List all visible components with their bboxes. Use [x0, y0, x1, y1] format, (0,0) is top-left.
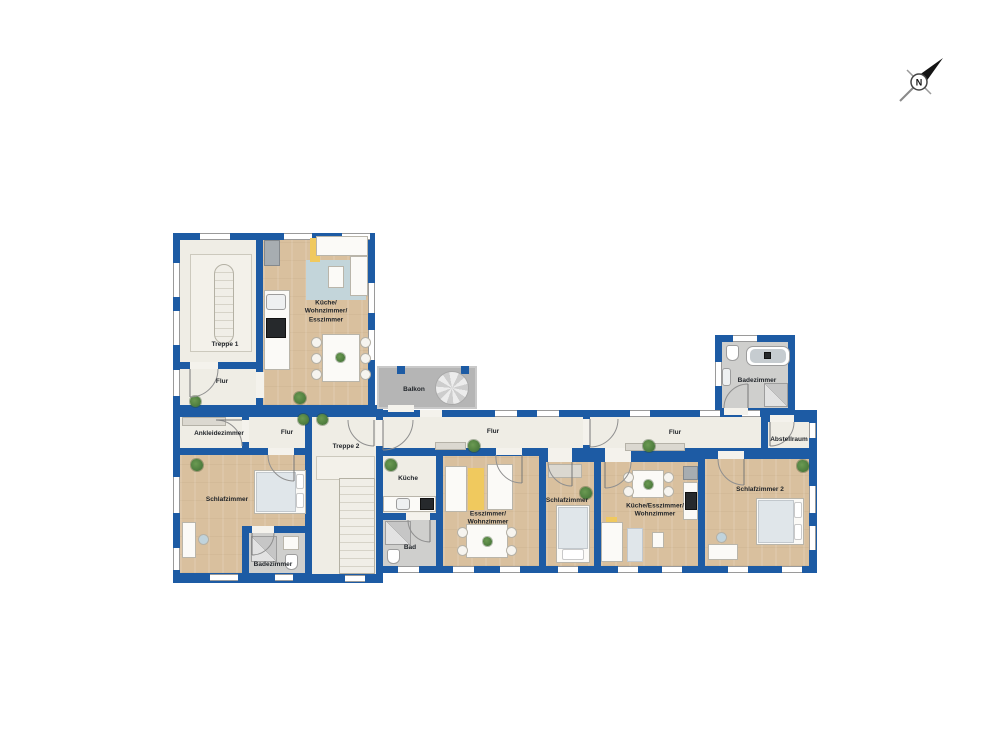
- door-opening: [420, 410, 442, 417]
- toilet: [726, 345, 739, 361]
- door-arcs: [0, 0, 1000, 750]
- chair: [457, 545, 468, 556]
- room-label-kueche-ess-wohn: Küche/Esszimmer/ Wohnzimmer: [626, 503, 684, 520]
- pillow: [296, 493, 304, 508]
- plant: [336, 353, 345, 362]
- stairs-treppe2: [339, 478, 375, 574]
- bed-mattress: [758, 500, 794, 543]
- plant: [385, 459, 397, 471]
- window: [809, 486, 816, 513]
- balcony-post: [461, 366, 469, 374]
- chair: [360, 369, 371, 380]
- door-opening: [770, 415, 794, 422]
- plant: [294, 392, 306, 404]
- room-label-flur-mid: Flur: [281, 429, 293, 437]
- plant: [468, 440, 480, 452]
- door-opening: [406, 513, 430, 520]
- stove: [685, 492, 697, 510]
- window: [275, 574, 293, 581]
- sideboard: [435, 442, 466, 450]
- window: [173, 263, 180, 297]
- desk-chair: [198, 534, 209, 545]
- desk-chair: [716, 532, 727, 543]
- wardrobe: [548, 464, 582, 478]
- window: [782, 566, 802, 573]
- shower: [251, 536, 277, 562]
- window: [173, 477, 180, 513]
- door-opening: [718, 451, 744, 459]
- kitchen-sink: [266, 294, 286, 310]
- sofa: [316, 236, 368, 256]
- shower: [764, 383, 788, 407]
- pillow: [296, 474, 304, 489]
- room-label-treppe2: Treppe 2: [333, 443, 360, 451]
- window: [809, 526, 816, 550]
- window: [809, 423, 816, 438]
- bed-mattress: [256, 472, 296, 512]
- window: [715, 362, 722, 386]
- room-label-abstellraum: Abstellraum: [770, 436, 808, 444]
- window: [173, 311, 180, 345]
- compass-north-label: N: [916, 78, 923, 88]
- room-label-kueche-wohn-ess: Küche/ Wohnzimmer/ Esszimmer: [305, 299, 348, 324]
- room-label-flur-left: Flur: [487, 428, 499, 436]
- door-opening: [496, 448, 522, 455]
- chair: [311, 353, 322, 364]
- door-opening: [268, 448, 294, 455]
- plant: [643, 440, 655, 452]
- pillow: [794, 502, 802, 518]
- corridor-left: [383, 417, 583, 448]
- door-opening: [252, 526, 274, 533]
- pillow: [794, 524, 802, 540]
- door-opening: [388, 405, 414, 412]
- sofa: [601, 522, 623, 562]
- room-label-schlafzimmer2: Schlafzimmer 2: [736, 486, 784, 494]
- window: [200, 233, 230, 240]
- door-opening: [583, 419, 590, 445]
- window: [398, 566, 419, 573]
- room-label-kueche-sued: Küche: [398, 475, 418, 483]
- room-label-flur-upper: Flur: [216, 378, 228, 386]
- spiral-staircase: [435, 371, 469, 405]
- stairs-treppe1: [214, 264, 234, 344]
- plant: [797, 460, 809, 472]
- desk: [182, 522, 196, 558]
- bath-sink: [722, 368, 731, 386]
- stove: [266, 318, 286, 338]
- chair: [663, 486, 674, 497]
- window: [173, 548, 180, 570]
- window: [728, 566, 748, 573]
- compass-north-icon: N: [893, 48, 953, 108]
- plant: [190, 396, 201, 407]
- kitchen-sink: [396, 498, 410, 510]
- chair: [506, 527, 517, 538]
- balcony-post: [397, 366, 405, 374]
- wardrobe: [182, 417, 226, 426]
- door-opening: [190, 362, 218, 369]
- window: [368, 283, 375, 313]
- accent-rug: [468, 468, 484, 510]
- window: [284, 233, 312, 240]
- window: [345, 575, 365, 582]
- room-label-esszimmer-wohnzimmer: Esszimmer/ Wohnzimmer: [468, 511, 509, 528]
- door-opening: [256, 372, 264, 398]
- plant: [298, 414, 309, 425]
- sofa-chaise: [350, 256, 368, 296]
- toilet: [387, 549, 400, 564]
- room-label-schlafzimmer-west: Schlafzimmer: [206, 496, 248, 504]
- chair: [360, 337, 371, 348]
- daybed: [487, 464, 513, 510]
- door-opening: [376, 420, 383, 446]
- plant: [191, 459, 203, 471]
- daybed: [627, 528, 643, 562]
- room-label-badezimmer-og: Badezimmer: [738, 377, 777, 385]
- window: [558, 566, 578, 573]
- chair: [311, 369, 322, 380]
- chair: [623, 472, 634, 483]
- sideboard: [625, 443, 685, 451]
- room-label-balkon: Balkon: [403, 386, 425, 394]
- side-table: [652, 532, 664, 548]
- room-label-ankleidezimmer: Ankleidezimmer: [194, 430, 244, 438]
- stairwell-treppe2: [316, 456, 375, 480]
- window: [453, 566, 474, 573]
- window: [618, 566, 638, 573]
- stove: [420, 498, 434, 510]
- room-label-bad-sued: Bad: [404, 544, 416, 552]
- room-label-badezimmer-west: Badezimmer: [254, 561, 293, 569]
- chair: [506, 545, 517, 556]
- pillow: [562, 549, 584, 560]
- chair: [663, 472, 674, 483]
- door-opening: [724, 408, 748, 415]
- window: [495, 410, 517, 417]
- sofa: [445, 466, 467, 512]
- window: [500, 566, 520, 573]
- door-opening: [548, 448, 572, 462]
- chair: [360, 353, 371, 364]
- chair: [311, 337, 322, 348]
- floor-plan-canvas: Treppe 1 Flur Küche/ Wohnzimmer/ Esszimm…: [0, 0, 1000, 750]
- plant: [483, 537, 492, 546]
- coffee-table: [328, 266, 344, 288]
- fridge: [683, 466, 698, 480]
- bath-fitting: [764, 352, 771, 359]
- shower: [385, 521, 411, 545]
- window: [210, 574, 238, 581]
- washer: [283, 536, 299, 550]
- chair: [457, 527, 468, 538]
- desk: [708, 544, 738, 560]
- chair: [623, 486, 634, 497]
- window: [537, 410, 559, 417]
- bath-west-wall-v: [242, 533, 249, 578]
- window: [733, 335, 757, 342]
- window: [662, 566, 682, 573]
- bed-mattress: [558, 507, 588, 549]
- plant: [317, 414, 328, 425]
- window: [700, 410, 720, 417]
- window: [173, 370, 180, 396]
- plant: [644, 480, 653, 489]
- window: [630, 410, 650, 417]
- room-flur-mid: [249, 417, 305, 448]
- room-label-flur-right: Flur: [669, 429, 681, 437]
- room-label-treppe1: Treppe 1: [212, 341, 239, 349]
- fridge: [264, 240, 280, 266]
- room-label-schlafzimmer-mitte: Schlafzimmer: [546, 497, 588, 505]
